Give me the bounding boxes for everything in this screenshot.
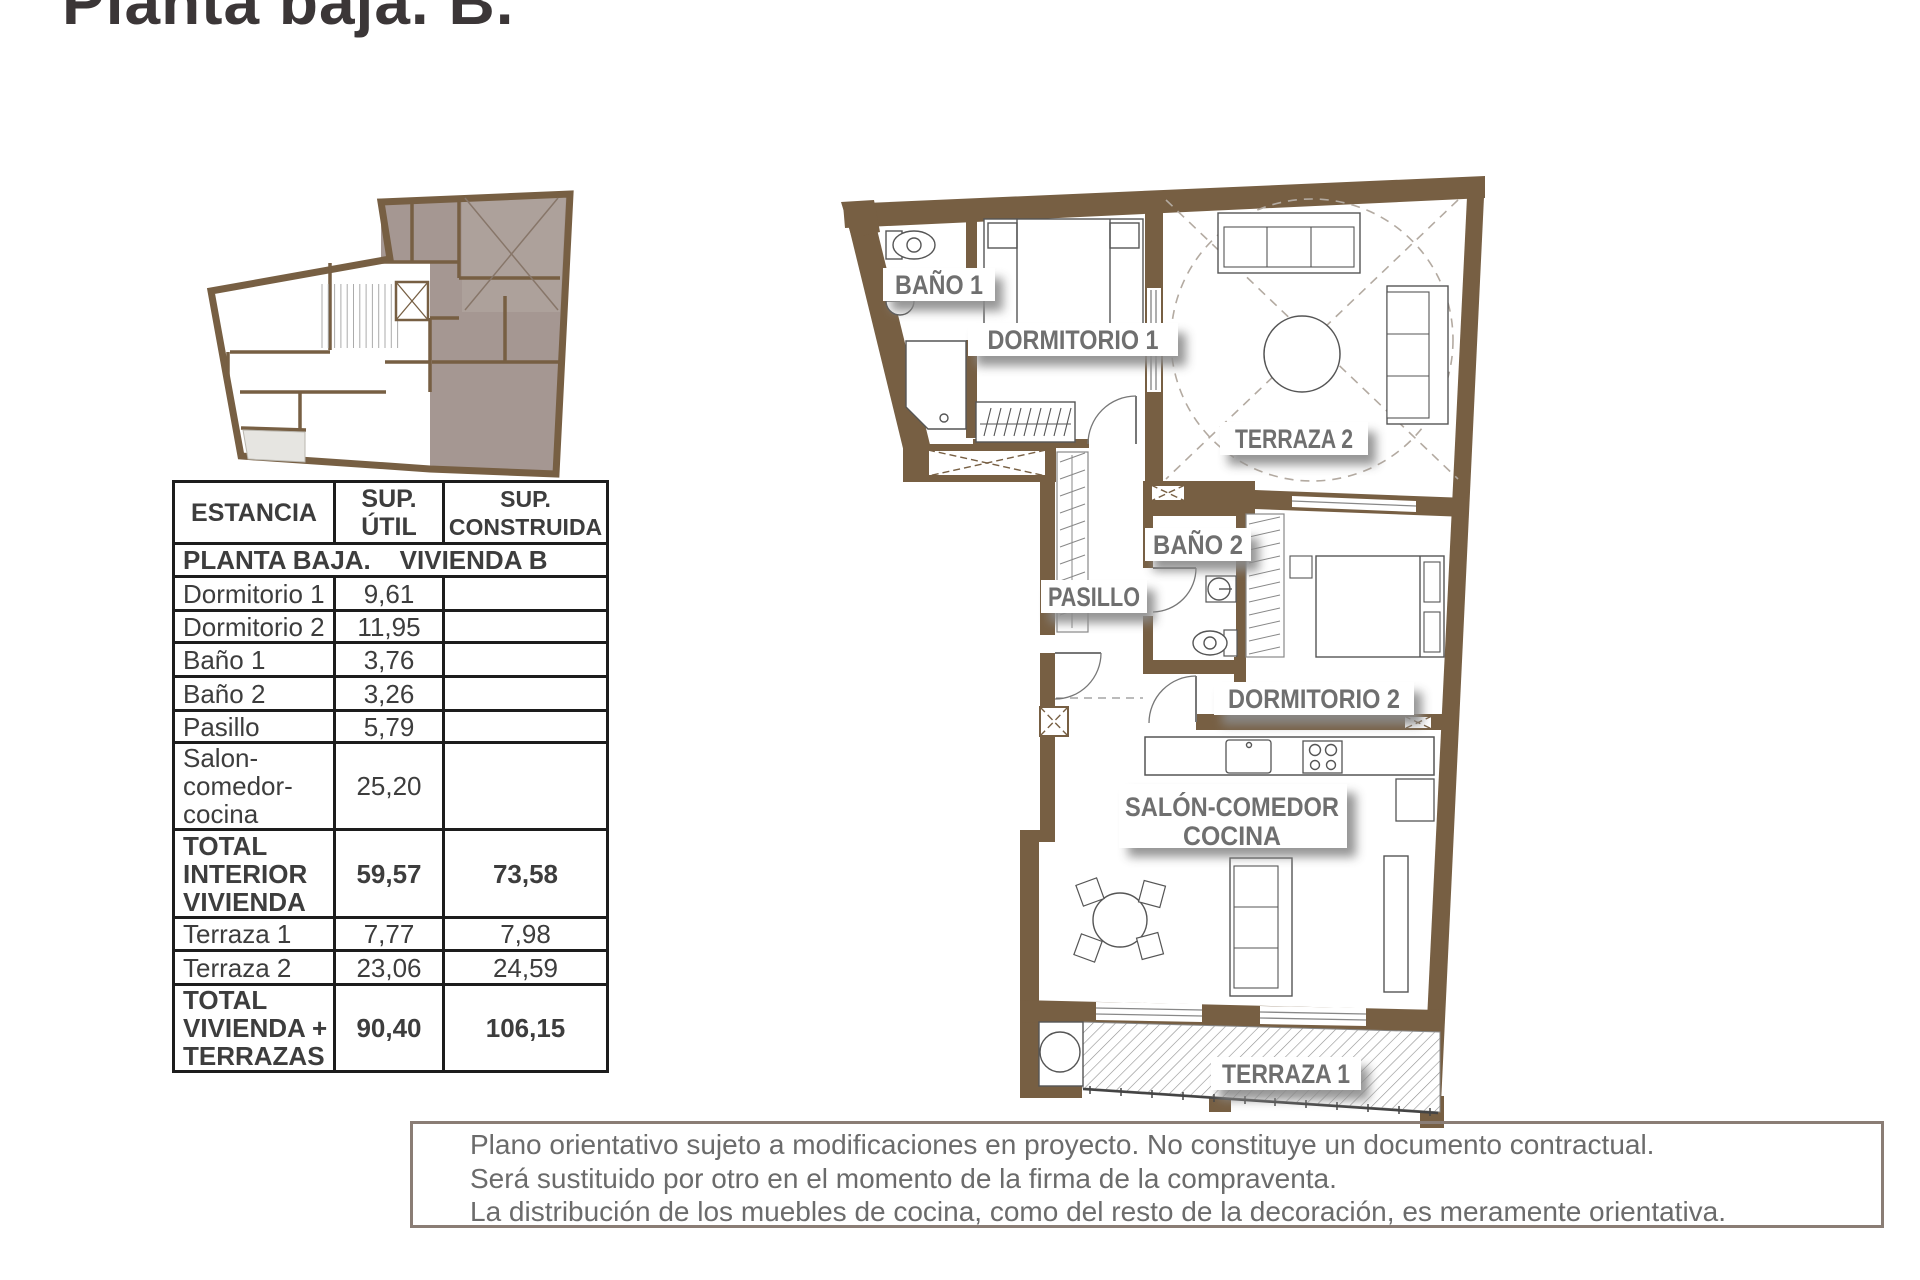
svg-text:SALÓN-COMEDOR: SALÓN-COMEDOR xyxy=(1125,791,1339,822)
svg-text:DORMITORIO 2: DORMITORIO 2 xyxy=(1228,684,1400,714)
svg-text:BAÑO 1: BAÑO 1 xyxy=(895,269,983,300)
svg-text:TERRAZA 2: TERRAZA 2 xyxy=(1235,424,1353,454)
svg-text:BAÑO 2: BAÑO 2 xyxy=(1153,529,1243,560)
svg-text:PASILLO: PASILLO xyxy=(1048,582,1140,612)
svg-text:COCINA: COCINA xyxy=(1183,821,1281,851)
svg-text:TERRAZA 1: TERRAZA 1 xyxy=(1222,1059,1350,1089)
svg-text:DORMITORIO 1: DORMITORIO 1 xyxy=(988,325,1159,355)
